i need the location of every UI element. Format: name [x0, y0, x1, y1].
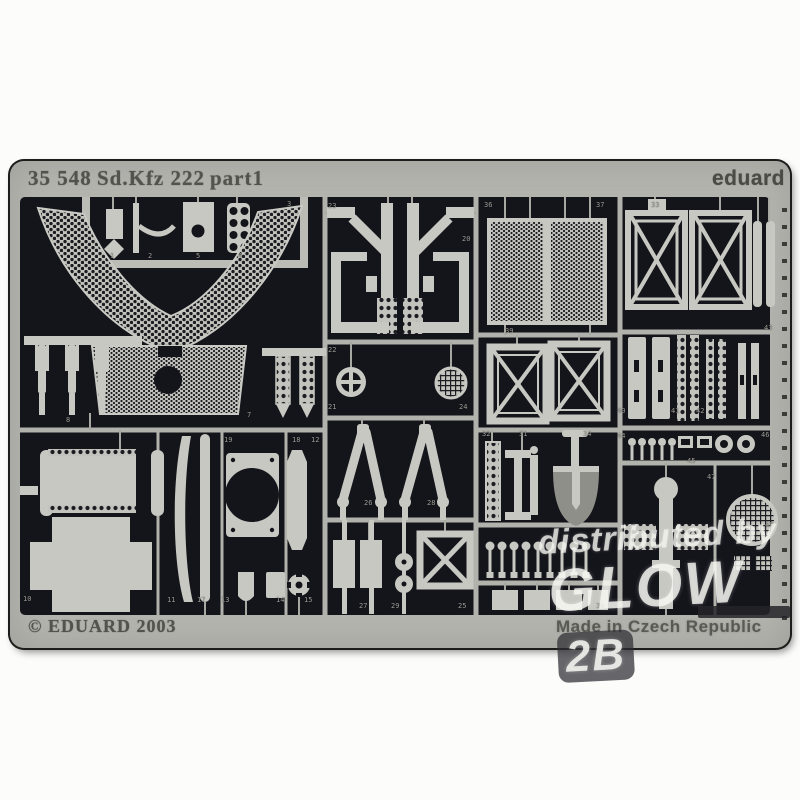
part-number: 47	[707, 473, 715, 481]
part-number: 11	[167, 596, 175, 604]
part-number: 34	[583, 430, 591, 438]
watermark-2b-badge: 2B	[557, 629, 636, 683]
part-number: 36	[484, 201, 492, 209]
part-number: 20	[462, 235, 470, 243]
part-set-label: part1	[210, 166, 264, 191]
part-number: 45	[687, 457, 695, 465]
part-number: 46	[761, 431, 769, 439]
part-number: 1	[110, 252, 114, 260]
eduard-brand-logotype: eduard	[712, 167, 785, 191]
catalog-number: 35 548	[28, 166, 92, 191]
watermark-glow-brand: GLOW2B	[547, 544, 800, 695]
part-number: 12	[311, 436, 319, 444]
part-number: 33	[651, 201, 659, 209]
part-number: 27	[359, 602, 367, 610]
part-number: 25	[458, 602, 466, 610]
subject-title: Sd.Kfz 222	[97, 166, 205, 191]
part-number: 19	[224, 436, 232, 444]
part-number: 3	[287, 200, 291, 208]
part-number: 21	[328, 403, 336, 411]
part-number: 32	[482, 430, 490, 438]
part-number: 41	[671, 407, 679, 415]
part-number: 14	[276, 596, 284, 604]
part-number: 15	[304, 596, 312, 604]
product-photo-etch-fret: 35 548 Sd.Kfz 222 part1 eduard © EDUARD …	[0, 0, 800, 800]
part-number: 13	[221, 596, 229, 604]
part-number: 8	[66, 416, 70, 424]
part-number: 44	[617, 432, 625, 440]
part-number: 17	[197, 596, 205, 604]
part-number: 2	[148, 252, 152, 260]
part-number: 31	[519, 430, 527, 438]
part-number: 28	[427, 499, 435, 507]
part-number: 39	[505, 327, 513, 335]
part-number: 37	[596, 201, 604, 209]
copyright-text: © EDUARD 2003	[28, 616, 176, 637]
part-number: 24	[459, 403, 467, 411]
part-number: 5	[196, 252, 200, 260]
part-number: 26	[364, 499, 372, 507]
part-number: 10	[23, 595, 31, 603]
part-number: 7	[247, 411, 251, 419]
part-number: 4	[238, 252, 242, 260]
part-number: 40	[617, 407, 625, 415]
part-number: 43	[764, 324, 772, 332]
watermark-glow-text: GLOW	[547, 547, 745, 624]
part-number: 23	[328, 202, 336, 210]
part-number: 42	[696, 407, 704, 415]
part-number: 29	[391, 602, 399, 610]
part-number: 22	[328, 346, 336, 354]
part-number: 18	[292, 436, 300, 444]
